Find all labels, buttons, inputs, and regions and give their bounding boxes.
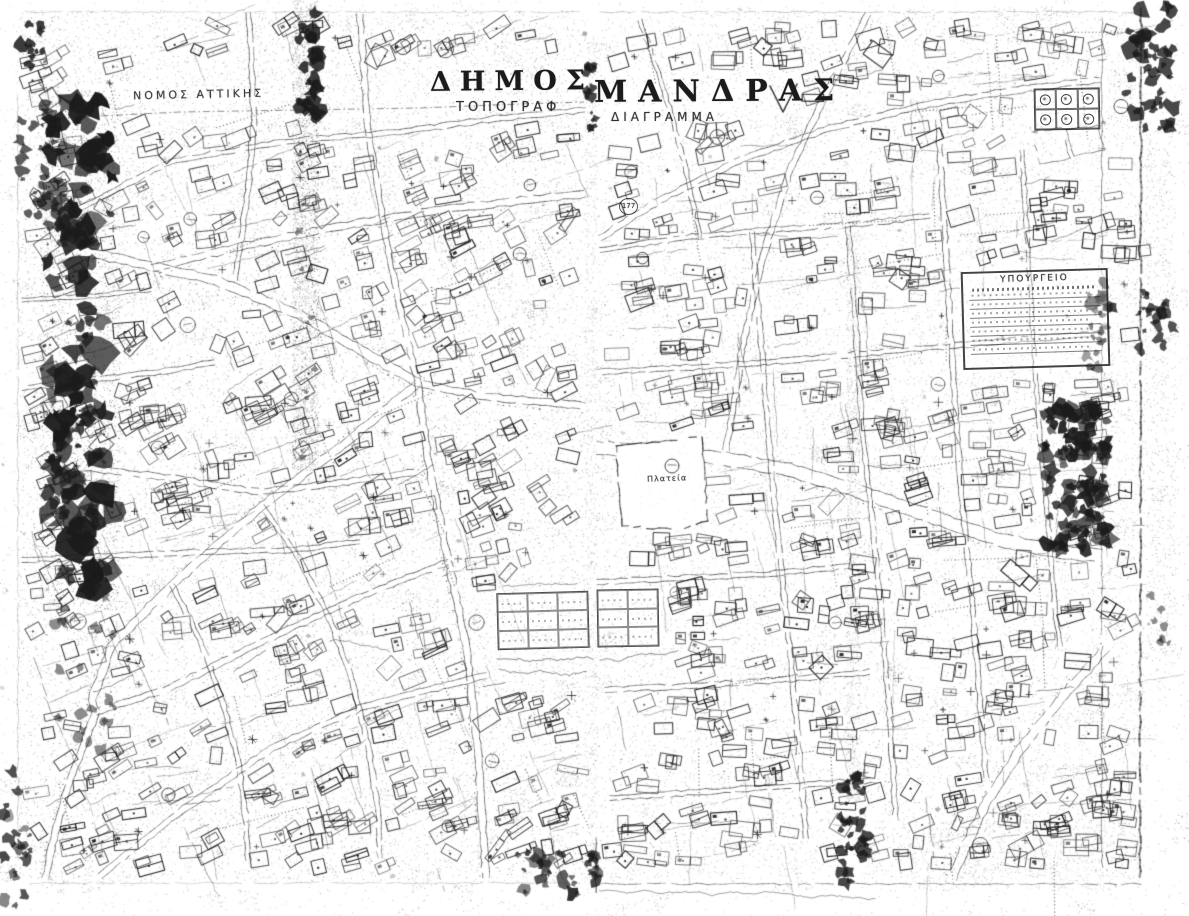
stamp-row (971, 344, 1102, 355)
legend-table-left-fragment (496, 591, 589, 650)
legend-cell (558, 628, 588, 647)
legend-cell (628, 627, 658, 646)
region-label: ΝΟΜΟΣ ΑΤΤΙΚΗΣ (133, 87, 264, 103)
legend-cell (498, 630, 528, 649)
block-number-badge: 177 (619, 198, 638, 215)
legend-cell (528, 629, 558, 648)
legend-cell (558, 610, 588, 629)
index-cell (1056, 109, 1078, 129)
index-cell (1035, 109, 1057, 129)
legend-cell (527, 593, 557, 612)
ministry-stamp-block: ΥΠΟΥΡΓΕΙΟ (961, 268, 1111, 370)
map-subtitle-left: ΤΟΠΟΓΡΑΦ (456, 100, 560, 115)
index-cell (1056, 89, 1078, 109)
legend-cell (528, 611, 558, 630)
sheet-index-grid (1034, 87, 1101, 130)
map-subtitle-right: ΔΙΑΓΡΑΜΜΑ (611, 110, 718, 124)
plaza-label: Πλατεία (647, 473, 687, 483)
index-cell (1078, 108, 1100, 128)
legend-cell (557, 592, 587, 611)
legend-cell (628, 589, 658, 608)
index-cell (1035, 89, 1057, 109)
legend-table-right-fragment (596, 588, 659, 647)
index-cell (1077, 88, 1099, 108)
map-title-left: ΔΗΜΟΣ (430, 65, 594, 98)
legend-cell (628, 608, 658, 627)
legend-cell (598, 627, 628, 646)
scanned-map-page: ΝΟΜΟΣ ΑΤΤΙΚΗΣ ΔΗΜΟΣ ΤΟΠΟΓΡΑΦ ΜΑΝΔΡΑΣ ΔΙΑ… (0, 0, 1189, 916)
legend-cell (598, 590, 628, 609)
legend-cell (497, 593, 527, 612)
legend-cell (598, 609, 628, 628)
map-title-right: ΜΑΝΔΡΑΣ (594, 73, 845, 110)
cadastral-map-canvas (0, 0, 1189, 916)
ministry-stamp-title: ΥΠΟΥΡΓΕΙΟ (967, 272, 1102, 286)
legend-cell (498, 612, 528, 631)
